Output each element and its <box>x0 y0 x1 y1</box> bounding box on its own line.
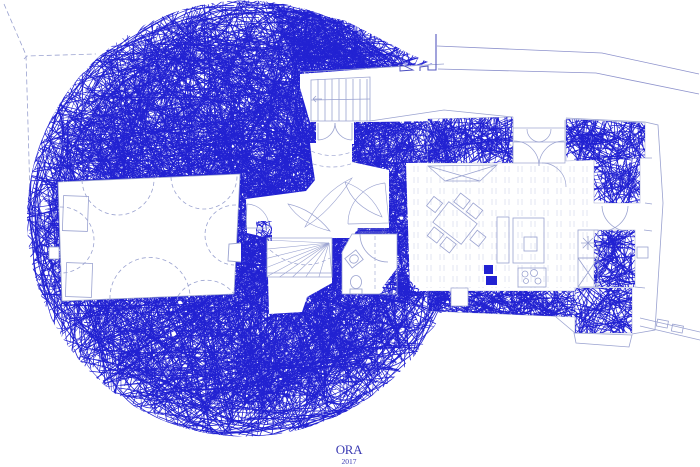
svg-text:ORA: ORA <box>336 442 363 457</box>
svg-text:2017: 2017 <box>342 457 357 466</box>
